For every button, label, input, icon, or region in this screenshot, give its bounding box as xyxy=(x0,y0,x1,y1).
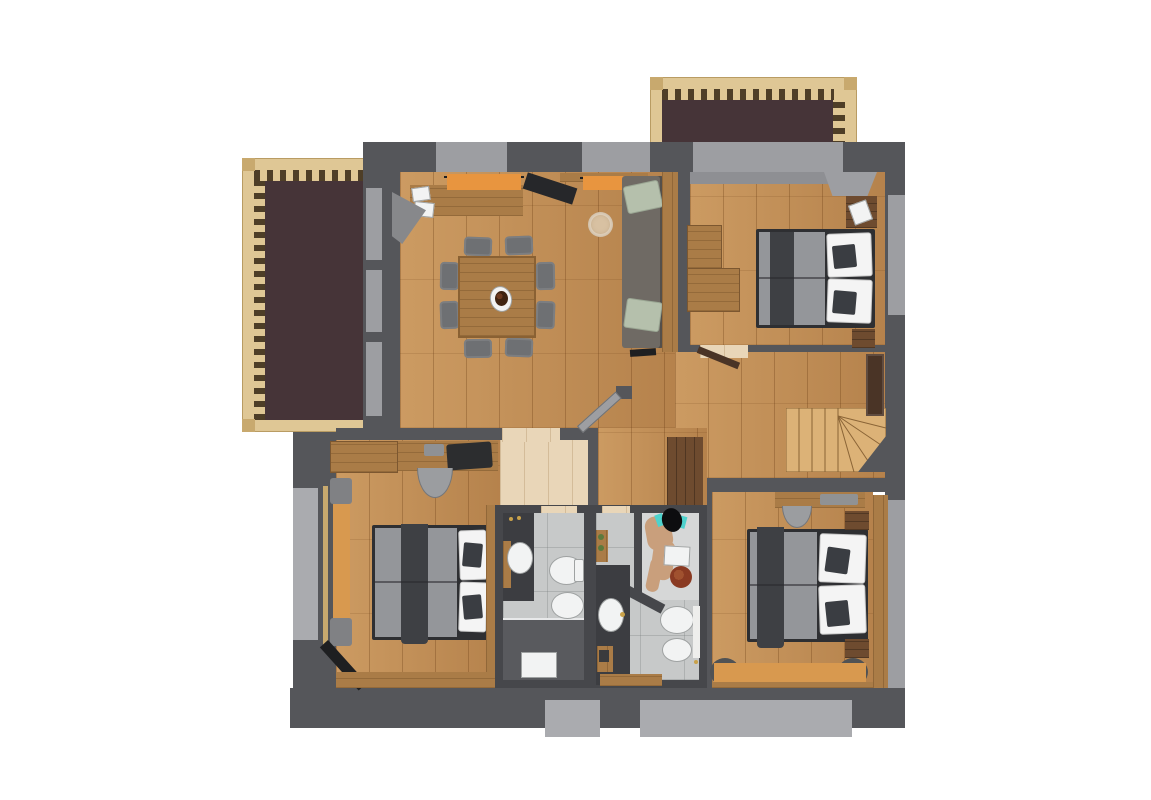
desk-items xyxy=(424,444,444,456)
bedroom1-window-sill xyxy=(690,172,843,184)
bathroom2-bench xyxy=(600,674,662,686)
curtain-left-window xyxy=(447,174,521,190)
floor-pouf xyxy=(588,212,613,237)
floorplan-canvas xyxy=(0,0,1151,800)
plant-small xyxy=(598,534,604,540)
door-handle xyxy=(694,660,698,664)
stool-item xyxy=(599,650,609,662)
bedroom3-nightstand xyxy=(845,639,869,658)
bathroom1-toilet-tank xyxy=(574,559,584,582)
bedroom2-bed-runner xyxy=(401,524,428,644)
bathroom1-doorway xyxy=(541,506,577,513)
wall-bedroom3-top xyxy=(700,478,885,492)
window-bay-bottom-1 xyxy=(545,700,600,737)
window-top-1 xyxy=(436,142,507,172)
bathroom1-bidet xyxy=(551,592,584,619)
bedroom2-cushion xyxy=(462,542,483,568)
window-bay-left xyxy=(293,488,318,640)
bedroom2-window-frame xyxy=(323,486,328,646)
dining-chair xyxy=(464,237,493,257)
decor-tray xyxy=(411,186,431,202)
hall-closet xyxy=(667,437,703,507)
vanity-accessory xyxy=(509,517,513,521)
bedroom3-mattress-split xyxy=(750,584,817,586)
sofa-pillow xyxy=(623,298,663,333)
dining-chair xyxy=(440,301,460,330)
dining-chair xyxy=(505,338,534,358)
vestibule-floor xyxy=(500,440,588,507)
balcony-left-railing-side xyxy=(254,181,265,420)
bedroom1-wardrobe xyxy=(687,225,722,269)
shower-tray xyxy=(663,545,690,566)
bedroom3-window-bench xyxy=(714,663,866,682)
dining-chair xyxy=(464,339,492,358)
bedroom2-window-bench xyxy=(333,500,350,622)
window-top-2 xyxy=(582,142,650,172)
bedroom3-nightstand xyxy=(845,511,869,530)
balcony-left-railing-top xyxy=(254,170,372,181)
bench-towel xyxy=(330,478,352,504)
window-mullion xyxy=(366,332,382,342)
bathroom2-doorway xyxy=(602,506,630,513)
bedroom2-wardrobe xyxy=(330,441,398,473)
dining-chair xyxy=(536,301,556,330)
bedroom3-cushion xyxy=(824,547,850,575)
faucet xyxy=(620,612,625,617)
window-right-bedroom1 xyxy=(888,195,905,315)
bathroom2-bidet xyxy=(662,638,692,662)
table-centerpiece xyxy=(495,291,508,306)
dining-chair xyxy=(440,262,459,290)
balcony-post xyxy=(242,419,255,432)
vestibule-doorway xyxy=(502,428,560,442)
bedroom2-wood-wall-bottom xyxy=(336,672,500,688)
bedroom1-cushion xyxy=(832,290,857,315)
bedroom1-wardrobe xyxy=(687,268,740,312)
bathroom2-toilet xyxy=(660,606,694,634)
window-balcony-door xyxy=(693,142,843,172)
vanity-accessory xyxy=(517,516,521,520)
bedroom2-desk-chair xyxy=(446,441,493,470)
sofa-back-panel xyxy=(662,172,678,352)
balcony-top-railing xyxy=(662,89,834,100)
window-mullion xyxy=(366,260,382,270)
wall-left-corner-bottom xyxy=(293,640,318,688)
bedroom1-nightstand xyxy=(852,329,875,348)
window-right-bedroom3 xyxy=(888,500,905,688)
dining-chair xyxy=(536,262,555,290)
shower-cabin-wall xyxy=(634,513,642,593)
balcony-top-railing-side xyxy=(833,100,845,147)
balcony-post xyxy=(242,158,255,171)
bedroom3-wood-wall-bottom xyxy=(712,682,873,688)
bedroom3-bed-runner xyxy=(757,527,784,648)
balcony-post xyxy=(650,77,663,90)
bathroom2-door-leaf xyxy=(693,606,700,658)
plant-small xyxy=(598,545,604,551)
bedroom2-mattress-split xyxy=(375,581,457,583)
shower-mat xyxy=(521,652,557,678)
bedroom1-mattress-split xyxy=(759,277,825,279)
stair-door-leaf xyxy=(866,354,884,416)
desk-items xyxy=(820,494,858,505)
window-left-balcony xyxy=(366,188,382,416)
bathroom1-washbasin xyxy=(507,542,533,574)
bedroom1-cushion xyxy=(832,244,857,269)
balcony-left-deck xyxy=(254,181,372,420)
bedroom2-cushion xyxy=(462,594,483,620)
balcony-top-deck xyxy=(662,100,833,147)
balcony-post xyxy=(844,77,857,90)
window-bay-bottom-2 xyxy=(640,700,852,737)
bedroom3-cushion xyxy=(825,600,850,627)
bedroom3-wood-wall-right xyxy=(873,495,888,688)
person2-head-red-hair xyxy=(670,566,692,588)
bench-towel xyxy=(330,618,352,646)
dining-chair xyxy=(505,236,534,256)
